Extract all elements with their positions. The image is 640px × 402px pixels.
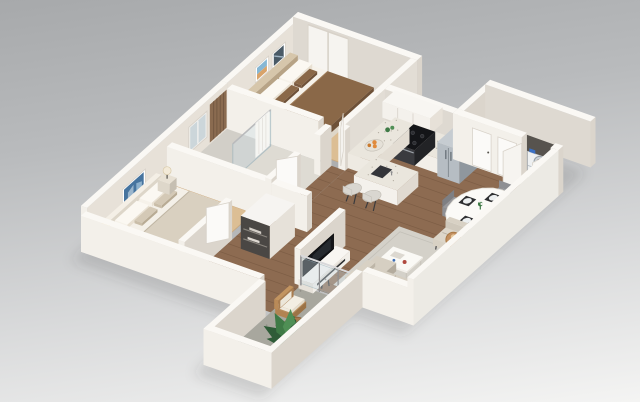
interior-door-1 bbox=[472, 128, 491, 172]
bed2-door-open bbox=[206, 203, 229, 244]
floor-plan-3d-scene bbox=[0, 0, 640, 402]
apartment-model bbox=[71, 12, 596, 398]
bath-wall-upper bbox=[314, 124, 331, 176]
floor-plan-render bbox=[0, 0, 640, 402]
